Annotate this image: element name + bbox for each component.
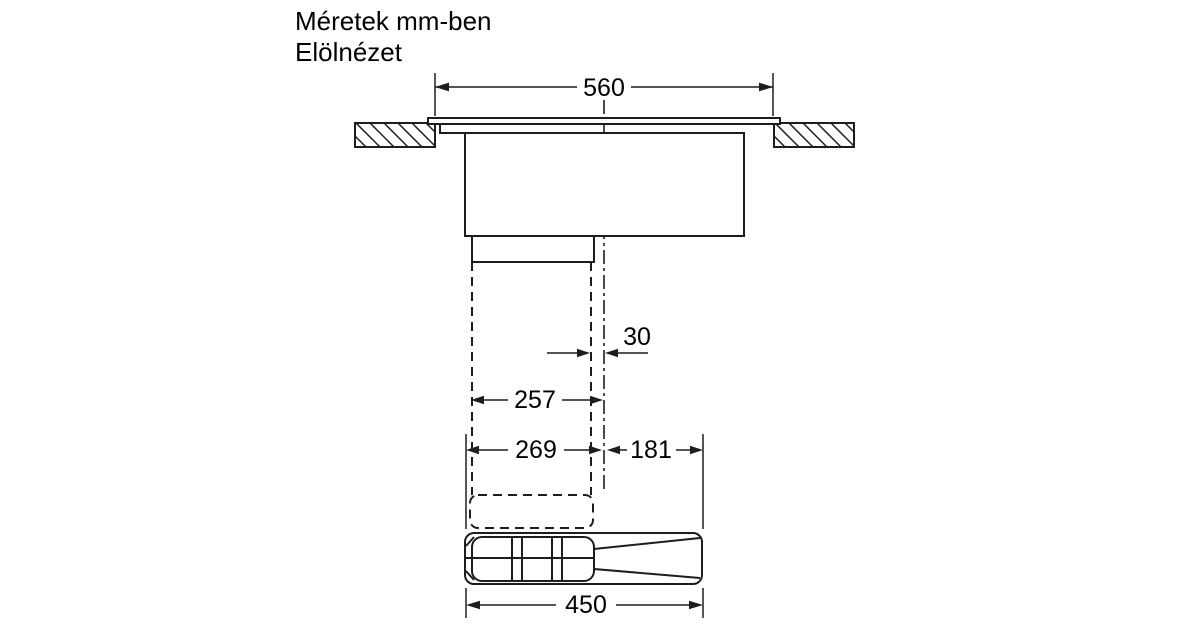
- duct-connector: [472, 236, 594, 262]
- hob-body: [465, 133, 744, 236]
- arrow-right-icon: [759, 83, 773, 92]
- duct-outlet-box: [470, 495, 593, 528]
- blower-unit: [465, 533, 702, 584]
- technical-drawing: 560: [0, 0, 1200, 630]
- hob-profile: [428, 118, 780, 262]
- frame-lip: [440, 124, 744, 133]
- arrow-right-icon: [590, 396, 603, 405]
- glass-top: [428, 118, 780, 124]
- dim-257-duct: 257: [471, 386, 603, 414]
- dim-label-269: 269: [515, 436, 557, 464]
- arrow-left-icon: [605, 349, 618, 358]
- arrow-left-icon: [435, 83, 449, 92]
- arrow-left-icon: [607, 446, 620, 455]
- arrow-left-icon: [466, 601, 480, 610]
- countertop-right-section: [774, 123, 854, 147]
- dim-label-450: 450: [565, 591, 607, 619]
- dim-label-30: 30: [623, 323, 651, 351]
- countertop-left-section: [355, 123, 435, 147]
- arrow-right-icon: [690, 446, 703, 455]
- arrow-right-icon: [589, 446, 602, 455]
- dim-30-offset: 30: [547, 323, 651, 357]
- dim-269-left-of-center: 269: [466, 436, 602, 464]
- drawing-canvas: Méretek mm-ben Elölnézet 560: [0, 0, 1200, 630]
- dim-450-blower-width: 450: [466, 591, 703, 619]
- arrow-right-icon: [577, 349, 590, 358]
- dim-label-181: 181: [630, 436, 672, 464]
- dim-label-560: 560: [583, 74, 625, 102]
- dim-label-257: 257: [514, 386, 556, 414]
- dim-181-right-of-center: 181: [607, 436, 703, 464]
- arrow-right-icon: [689, 601, 703, 610]
